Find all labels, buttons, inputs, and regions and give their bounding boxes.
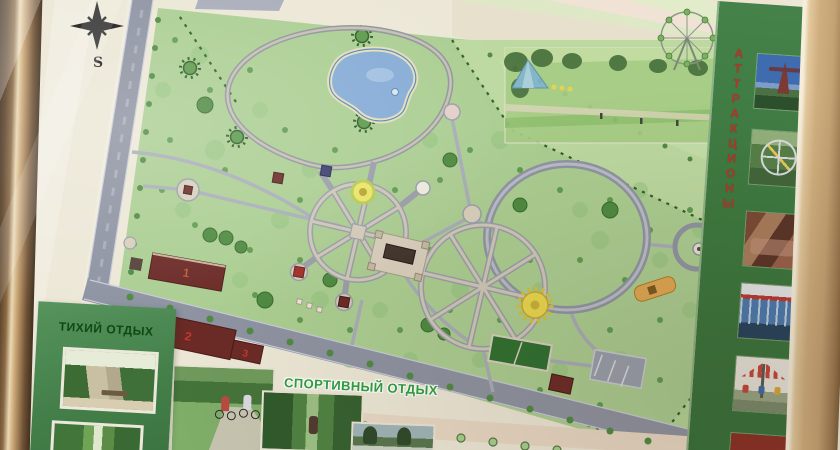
cyclist-red bbox=[221, 396, 230, 411]
wheel-shape bbox=[760, 138, 798, 176]
cyclist-white bbox=[243, 395, 252, 410]
photo-park-pond-view bbox=[350, 422, 435, 450]
photo-carousel-with-horses bbox=[738, 283, 798, 341]
photo-chain-swing-carousel bbox=[733, 356, 793, 414]
attractions-title: АТТРАКЦИОНЫ bbox=[721, 46, 747, 217]
photo-cyclist-among-trees bbox=[260, 390, 364, 450]
quiet-rest-panel: ТИХИЙ ОТДЫХ bbox=[30, 301, 177, 450]
tree-silhouette bbox=[363, 426, 378, 444]
bench-shape bbox=[101, 390, 127, 396]
tree-silhouette bbox=[397, 427, 412, 445]
compass-south-label: S bbox=[93, 55, 103, 71]
swing-seat bbox=[774, 387, 781, 395]
tower-shape bbox=[777, 61, 791, 94]
bike-wheel bbox=[251, 410, 260, 419]
photo-kids-ride bbox=[727, 433, 787, 450]
ride-shape bbox=[750, 238, 795, 257]
carousel-posts bbox=[739, 297, 797, 327]
photo-park-alley-with-benches bbox=[60, 347, 159, 414]
photo-shaded-tree-alley bbox=[49, 420, 144, 450]
park-info-board-photo: 1 2 3 bbox=[0, 0, 840, 450]
cyclist-silhouette bbox=[309, 416, 319, 434]
quiet-rest-title: ТИХИЙ ОТДЫХ bbox=[37, 318, 176, 340]
swing-seat bbox=[742, 385, 749, 393]
swing-seat bbox=[758, 386, 765, 394]
